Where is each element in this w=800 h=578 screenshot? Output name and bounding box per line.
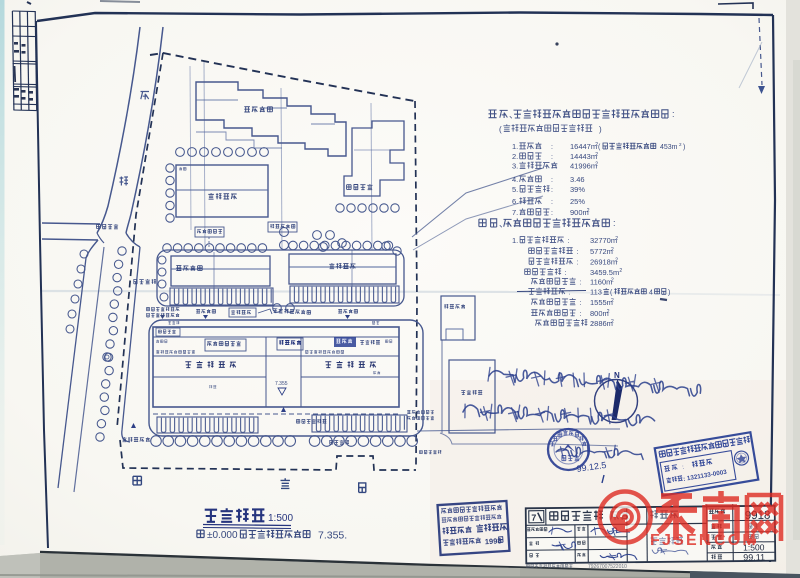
svg-text:3459.5m: 3459.5m xyxy=(590,268,619,277)
svg-text:2: 2 xyxy=(587,208,590,214)
svg-text::: : xyxy=(551,210,553,217)
svg-text:2: 2 xyxy=(611,319,614,325)
svg-text:2: 2 xyxy=(595,152,598,158)
svg-text:7: 7 xyxy=(531,513,536,523)
svg-text:2: 2 xyxy=(615,236,618,242)
svg-text:79267007522010: 79267007522010 xyxy=(588,564,627,570)
svg-text:2.: 2. xyxy=(512,152,518,161)
svg-text::: : xyxy=(580,311,582,318)
svg-text::: : xyxy=(577,249,579,256)
svg-text:99.11: 99.11 xyxy=(743,552,765,562)
svg-text:1.: 1. xyxy=(512,142,518,151)
svg-text:3.46: 3.46 xyxy=(570,175,585,184)
svg-text:4.: 4. xyxy=(512,175,518,184)
svg-text::: : xyxy=(551,144,553,151)
svg-text:26918m: 26918m xyxy=(590,258,617,267)
svg-text:39%: 39% xyxy=(570,185,585,194)
svg-text:7.: 7. xyxy=(512,208,518,217)
svg-text:41996m: 41996m xyxy=(570,162,597,171)
svg-text::: : xyxy=(551,164,553,171)
svg-text:7.355: 7.355 xyxy=(275,381,288,387)
svg-text:2: 2 xyxy=(595,162,598,168)
svg-text:2: 2 xyxy=(611,298,614,304)
svg-text:FJSEN: FJSEN xyxy=(650,532,713,549)
svg-text:1160m: 1160m xyxy=(590,278,612,287)
svg-text::: : xyxy=(613,218,616,228)
svg-text::: : xyxy=(577,260,579,267)
svg-text:7.355.: 7.355. xyxy=(318,530,347,542)
svg-text:): ) xyxy=(599,125,602,134)
svg-text:COM: COM xyxy=(714,532,758,549)
svg-text:16447m: 16447m xyxy=(570,142,597,151)
svg-text::: : xyxy=(580,300,582,307)
svg-text:2886m: 2886m xyxy=(590,319,613,328)
svg-text:25%: 25% xyxy=(570,197,585,206)
svg-text::: : xyxy=(551,154,553,161)
svg-text::: : xyxy=(565,270,567,277)
svg-text:2: 2 xyxy=(679,142,682,147)
svg-text:14443m: 14443m xyxy=(570,152,597,161)
svg-text::: : xyxy=(551,177,553,184)
svg-text:5772m: 5772m xyxy=(590,247,613,256)
svg-text:4: 4 xyxy=(649,290,653,297)
svg-text::: : xyxy=(568,238,570,245)
svg-text::: : xyxy=(551,199,553,206)
svg-text:.: . xyxy=(707,532,711,549)
svg-text::: : xyxy=(551,187,553,194)
svg-text:2: 2 xyxy=(615,258,618,264)
svg-text:5.: 5. xyxy=(512,185,518,194)
svg-text:453m: 453m xyxy=(660,144,678,151)
svg-text:(: ( xyxy=(499,125,502,134)
svg-text:): ) xyxy=(668,290,670,297)
svg-text:): ) xyxy=(683,144,685,151)
svg-text:2: 2 xyxy=(611,278,614,284)
svg-text:1.: 1. xyxy=(512,236,518,245)
svg-text:N: N xyxy=(614,371,620,380)
svg-text:113: 113 xyxy=(590,288,602,297)
svg-text:6.: 6. xyxy=(512,197,518,206)
svg-text:2: 2 xyxy=(607,309,610,315)
svg-text::: : xyxy=(580,280,582,287)
svg-text:2: 2 xyxy=(619,268,622,274)
svg-text:1555m: 1555m xyxy=(590,298,613,307)
svg-text:2: 2 xyxy=(611,247,614,253)
svg-text:3.: 3. xyxy=(512,162,518,171)
svg-text:1:500: 1:500 xyxy=(268,513,293,524)
svg-text::: : xyxy=(672,109,675,119)
svg-text:±0.000: ±0.000 xyxy=(207,530,238,541)
svg-text:32770m: 32770m xyxy=(590,236,617,245)
